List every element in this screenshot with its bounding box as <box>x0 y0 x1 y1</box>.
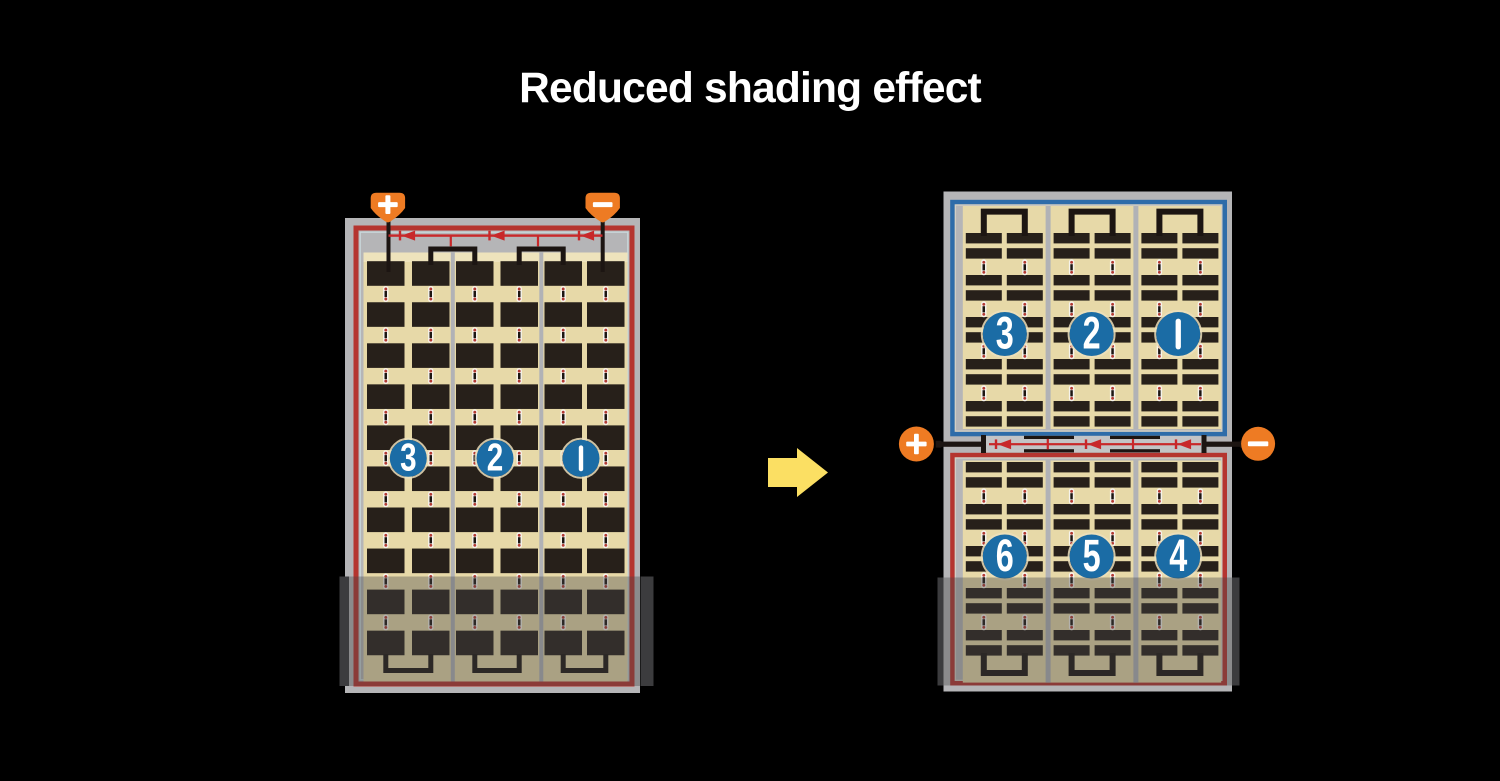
svg-text:3: 3 <box>400 437 416 480</box>
svg-text:2: 2 <box>487 437 503 480</box>
svg-text:4: 4 <box>1169 532 1187 581</box>
svg-text:2: 2 <box>1083 309 1101 358</box>
svg-text:6: 6 <box>996 532 1014 581</box>
svg-text:Reduced shading effect: Reduced shading effect <box>519 65 981 112</box>
svg-text:5: 5 <box>1083 532 1101 581</box>
svg-text:3: 3 <box>996 309 1014 358</box>
